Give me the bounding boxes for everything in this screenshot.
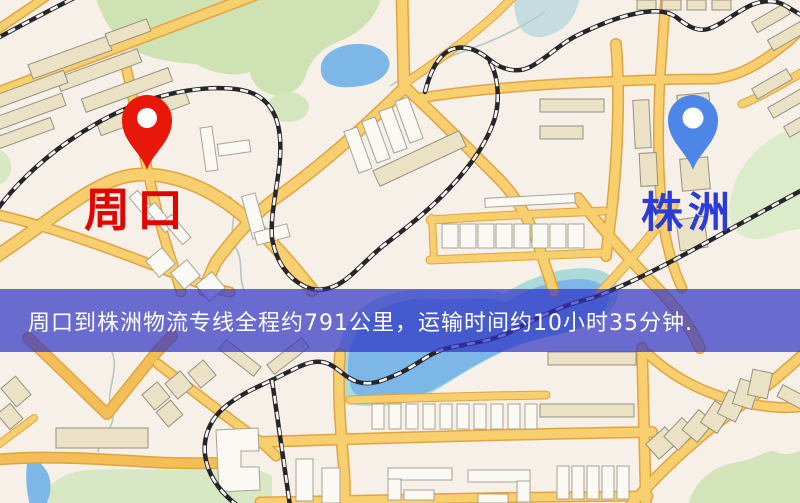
route-info-banner: 周口到株洲物流专线全程约791公里，运输时间约10小时35分钟. <box>0 289 800 352</box>
origin-marker-icon[interactable] <box>116 90 178 172</box>
destination-city-label: 株洲 <box>641 179 735 240</box>
red-pin[interactable] <box>122 95 172 170</box>
origin-city-label: 周口 <box>84 174 190 240</box>
map-screenshot: 周口 株洲 周口到株洲物流专线全程约791公里，运输时间约10小时35分钟. <box>0 0 800 503</box>
destination-marker-icon[interactable] <box>662 90 724 172</box>
pin-hole <box>137 108 157 128</box>
pin-hole <box>683 108 704 129</box>
map-canvas[interactable] <box>0 0 800 503</box>
blue-pin[interactable] <box>668 95 718 170</box>
route-info-text: 周口到株洲物流专线全程约791公里，运输时间约10小时35分钟. <box>28 305 693 337</box>
